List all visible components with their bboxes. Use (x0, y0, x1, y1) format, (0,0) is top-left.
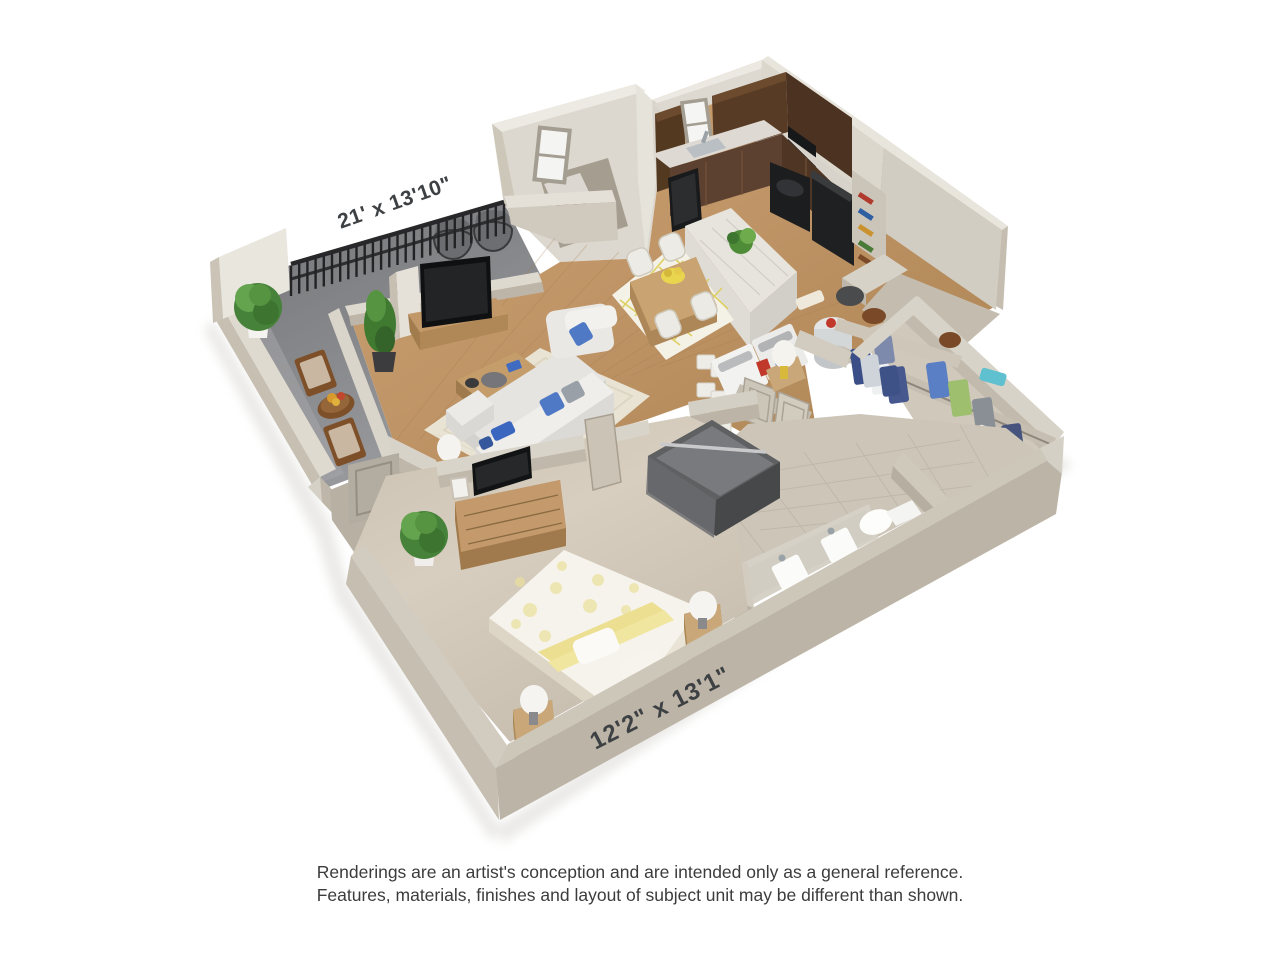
svg-text:Renderings are an artist's con: Renderings are an artist's conception an… (317, 862, 963, 882)
svg-text:Features, materials, finishes: Features, materials, finishes and layout… (317, 885, 964, 905)
